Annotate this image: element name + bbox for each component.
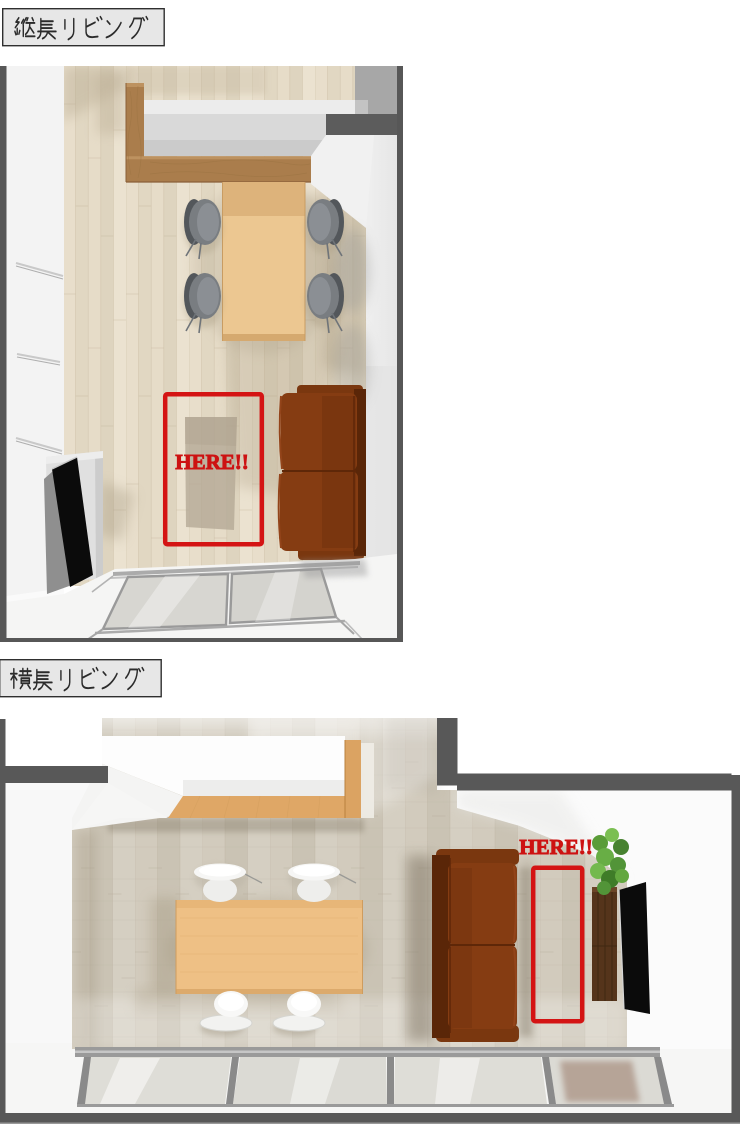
svg-text:HERE!!: HERE!! [175, 450, 249, 474]
svg-text:HERE!!: HERE!! [519, 835, 593, 859]
